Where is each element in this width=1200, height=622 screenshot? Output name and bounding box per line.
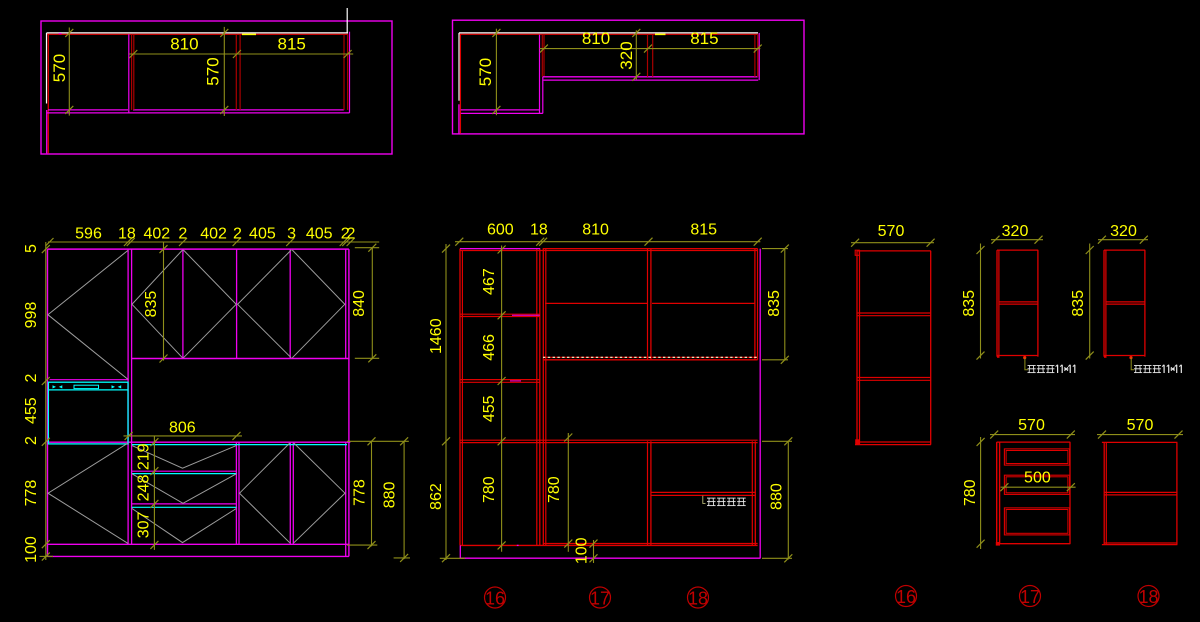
svg-text:17: 17 bbox=[1020, 587, 1040, 607]
svg-text:2: 2 bbox=[233, 226, 242, 243]
svg-text:778: 778 bbox=[23, 480, 40, 507]
svg-text:405: 405 bbox=[249, 226, 276, 243]
svg-text:570: 570 bbox=[50, 54, 69, 82]
svg-text:815: 815 bbox=[278, 34, 306, 53]
svg-text:16: 16 bbox=[485, 588, 505, 608]
svg-text:2: 2 bbox=[178, 226, 187, 243]
svg-text:100: 100 bbox=[23, 536, 40, 563]
svg-text:466: 466 bbox=[481, 334, 498, 361]
svg-text:862: 862 bbox=[428, 483, 445, 510]
svg-text:596: 596 bbox=[75, 226, 102, 243]
svg-text:2: 2 bbox=[23, 436, 40, 445]
svg-text:998: 998 bbox=[23, 302, 40, 329]
svg-text:500: 500 bbox=[1024, 470, 1051, 487]
svg-text:840: 840 bbox=[351, 290, 368, 317]
svg-text:402: 402 bbox=[200, 226, 227, 243]
svg-text:810: 810 bbox=[582, 222, 609, 239]
svg-text:835: 835 bbox=[143, 291, 160, 318]
svg-text:570: 570 bbox=[1127, 417, 1154, 434]
svg-text:570: 570 bbox=[476, 58, 495, 86]
svg-text:780: 780 bbox=[962, 479, 979, 506]
svg-text:405: 405 bbox=[306, 226, 333, 243]
svg-text:402: 402 bbox=[143, 226, 170, 243]
svg-text:835: 835 bbox=[961, 290, 978, 317]
svg-text:780: 780 bbox=[481, 476, 498, 503]
svg-text:320: 320 bbox=[1110, 223, 1137, 240]
svg-text:810: 810 bbox=[170, 35, 198, 54]
svg-text:100: 100 bbox=[573, 537, 590, 564]
svg-text:307: 307 bbox=[136, 511, 153, 538]
svg-text:18: 18 bbox=[1138, 587, 1158, 607]
svg-text:780: 780 bbox=[546, 476, 563, 503]
svg-text:600: 600 bbox=[487, 222, 514, 239]
svg-text:320: 320 bbox=[617, 41, 636, 69]
svg-text:455: 455 bbox=[481, 395, 498, 422]
svg-text:320: 320 bbox=[1002, 223, 1029, 240]
svg-text:778: 778 bbox=[351, 479, 368, 506]
svg-text:3: 3 bbox=[287, 226, 296, 243]
svg-text:570: 570 bbox=[203, 57, 222, 85]
svg-text:880: 880 bbox=[382, 481, 399, 508]
svg-text:467: 467 bbox=[481, 268, 498, 295]
svg-text:806: 806 bbox=[169, 420, 196, 437]
svg-text:2: 2 bbox=[347, 226, 356, 243]
svg-text:18: 18 bbox=[118, 226, 136, 243]
svg-text:17: 17 bbox=[590, 588, 610, 608]
svg-text:810: 810 bbox=[582, 29, 610, 48]
svg-text:455: 455 bbox=[23, 397, 40, 424]
svg-text:815: 815 bbox=[690, 222, 717, 239]
svg-text:248: 248 bbox=[136, 475, 153, 502]
svg-text:2: 2 bbox=[23, 374, 40, 383]
svg-text:18: 18 bbox=[530, 222, 548, 239]
svg-text:16: 16 bbox=[896, 587, 916, 607]
svg-text:835: 835 bbox=[1070, 290, 1087, 317]
svg-text:5: 5 bbox=[23, 244, 40, 253]
svg-text:815: 815 bbox=[690, 29, 718, 48]
svg-text:880: 880 bbox=[769, 483, 786, 510]
svg-text:570: 570 bbox=[1018, 417, 1045, 434]
svg-text:18: 18 bbox=[688, 588, 708, 608]
svg-text:570: 570 bbox=[878, 223, 905, 240]
svg-text:219: 219 bbox=[136, 443, 153, 470]
svg-text:1460: 1460 bbox=[428, 318, 445, 354]
svg-text:835: 835 bbox=[766, 290, 783, 317]
